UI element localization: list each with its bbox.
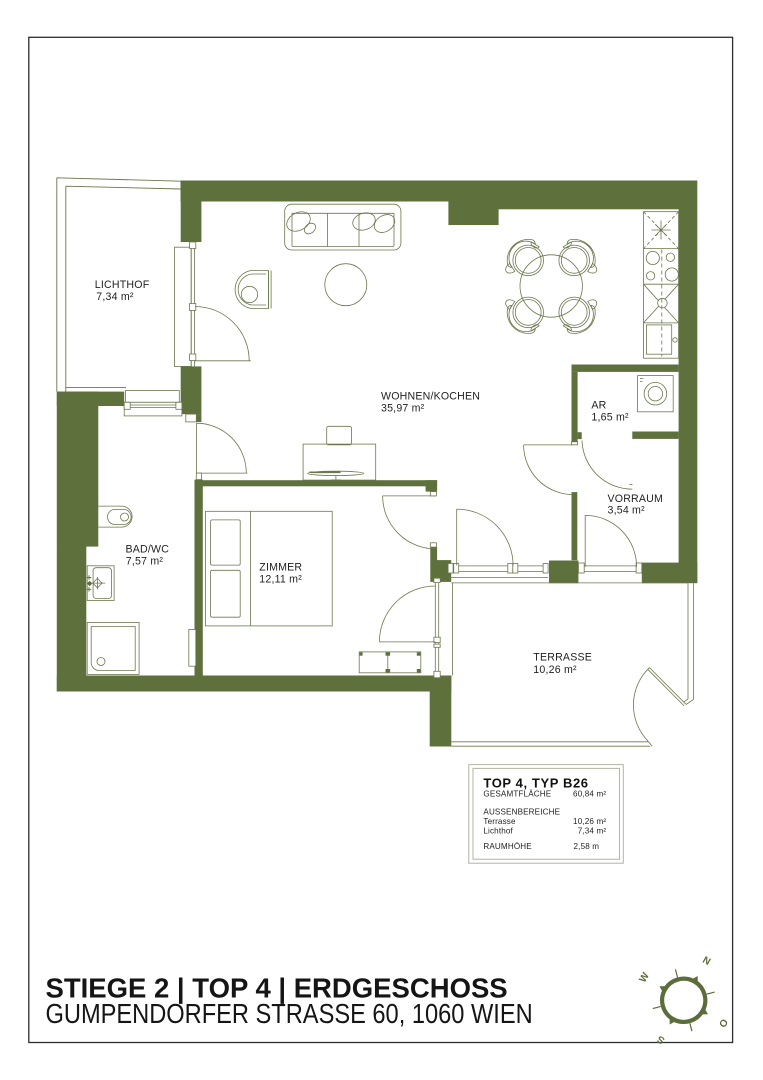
svg-text:GESAMTFLÄCHE: GESAMTFLÄCHE <box>483 789 551 798</box>
svg-text:BAD/WC: BAD/WC <box>126 544 170 556</box>
svg-text:RAUMHÖHE: RAUMHÖHE <box>483 842 532 851</box>
svg-text:10,26 m²: 10,26 m² <box>573 817 606 826</box>
svg-text:Lichthof: Lichthof <box>483 827 513 836</box>
svg-text:2,58 m: 2,58 m <box>574 842 600 851</box>
svg-text:1,65 m²: 1,65 m² <box>591 412 629 424</box>
svg-text:Terrasse: Terrasse <box>483 817 516 826</box>
svg-text:AR: AR <box>591 400 606 412</box>
svg-text:TERRASSE: TERRASSE <box>533 652 592 664</box>
svg-text:VORRAUM: VORRAUM <box>608 493 664 505</box>
svg-text:LICHTHOF: LICHTHOF <box>95 279 150 291</box>
svg-text:7,34 m²: 7,34 m² <box>96 291 134 303</box>
svg-text:35,97 m²: 35,97 m² <box>381 403 425 415</box>
svg-text:TOP 4, TYP B26: TOP 4, TYP B26 <box>483 776 588 791</box>
svg-text:60,84 m²: 60,84 m² <box>573 789 606 798</box>
svg-text:10,26 m²: 10,26 m² <box>533 664 577 676</box>
svg-text:12,11 m²: 12,11 m² <box>259 574 302 586</box>
svg-text:3,54 m²: 3,54 m² <box>608 505 646 517</box>
svg-text:7,34 m²: 7,34 m² <box>578 827 607 836</box>
svg-text:WOHNEN/KOCHEN: WOHNEN/KOCHEN <box>381 391 480 403</box>
svg-text:ZIMMER: ZIMMER <box>259 562 302 574</box>
svg-text:GUMPENDORFER STRASSE 60, 1060: GUMPENDORFER STRASSE 60, 1060 WIEN <box>46 999 533 1029</box>
svg-text:7,57 m²: 7,57 m² <box>126 555 164 567</box>
svg-text:AUSSENBEREICHE: AUSSENBEREICHE <box>483 807 560 816</box>
